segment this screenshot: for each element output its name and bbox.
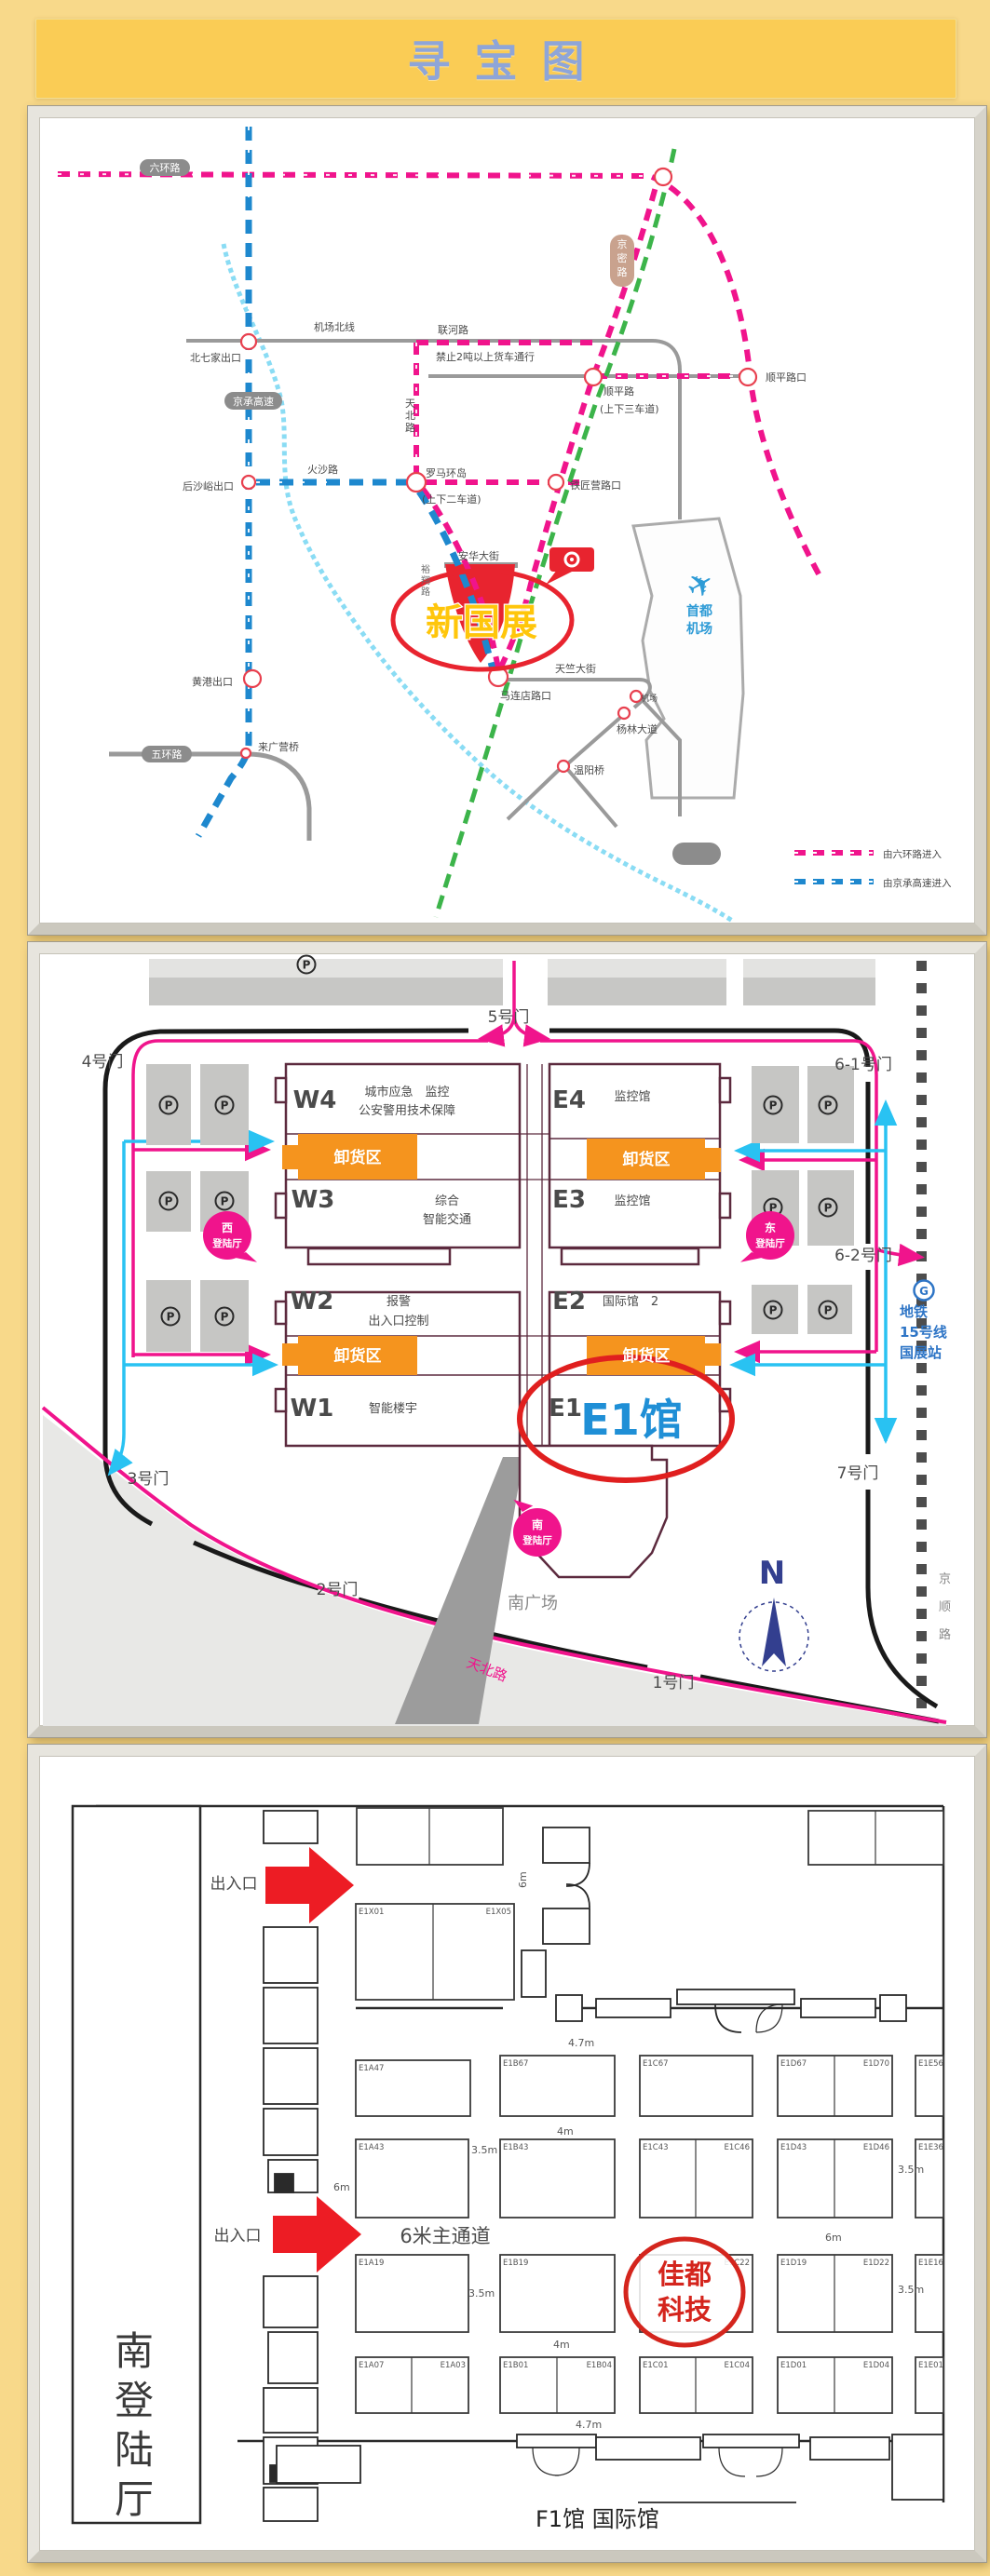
map-label: 3.5m [468, 2287, 495, 2300]
railway-dash [916, 1385, 927, 1396]
map-label: 铁匠营路口 [570, 479, 621, 492]
map-label: 出入口 [214, 2227, 262, 2246]
booth-id: E1D70 [863, 2059, 889, 2069]
booth: E1E56 [915, 2056, 943, 2116]
map-label: 卸货区 [623, 1150, 671, 1169]
map-label: 城市应急 监控 [364, 1085, 449, 1099]
pci-highlight-circle [626, 2239, 743, 2345]
map-label: 6m [825, 2232, 842, 2244]
booth: E1D43E1D46 [778, 2139, 892, 2218]
booth-id: E1C46 [724, 2143, 750, 2152]
registration-hall-bubble: 东登陆厅 [740, 1211, 794, 1262]
map-label: 报警 [387, 1294, 411, 1309]
road-badge-label: 京承高速 [233, 395, 274, 408]
railway-dash [916, 1072, 927, 1083]
map-label: 监控馆 [614, 1090, 650, 1104]
map-label: 顺平路口 [766, 371, 807, 384]
venue-map-panel: G PPPPPPPPPPPPP 西登陆厅东登陆厅南登陆厅 5号门4号门3号门2号… [28, 942, 986, 1737]
expo-badge [546, 547, 594, 585]
road-badge: 京密路 [610, 235, 634, 287]
railway-dash [916, 1184, 927, 1194]
railway-dash [916, 1631, 927, 1641]
map-label: 机场 [686, 621, 712, 637]
booth-id: E1D19 [780, 2259, 807, 2268]
page-title: 寻宝图 [384, 28, 609, 89]
booth-id: E1A47 [359, 2064, 384, 2073]
title-bar: 寻宝图 [35, 19, 956, 99]
map-label: 地铁 [900, 1303, 928, 1320]
map-label: 6m [333, 2181, 350, 2193]
map-label: 出入口 [210, 1875, 258, 1894]
map-label: 4.7m [568, 2037, 594, 2049]
booth-id: E1A43 [359, 2143, 384, 2152]
parking-letter: P [165, 1099, 173, 1113]
railway-dash [916, 961, 927, 971]
map-label: 综合 [435, 1194, 459, 1208]
north-parking-strip [149, 957, 875, 1007]
map-label: 杨林大道 [617, 722, 658, 735]
parking-letter: P [167, 1311, 175, 1324]
map-label: 国展站 [900, 1344, 942, 1361]
map-label: 来广营桥 [258, 740, 299, 753]
map-label: 4m [553, 2339, 570, 2351]
map-label: 新国展 [426, 601, 537, 644]
parking-letter: P [303, 959, 311, 972]
map-label: 6-2号门 [834, 1247, 892, 1265]
booth-id: E1B01 [503, 2361, 528, 2370]
reg-hall-label: 登陆厅 [754, 1237, 785, 1249]
booth: E1D01E1D04 [778, 2357, 892, 2413]
registration-hall-bubble: 西登陆厅 [203, 1211, 257, 1262]
booth: E1C01E1C04 [640, 2357, 753, 2413]
map-label: N [759, 1555, 785, 1592]
map-label: 马连店路口 [500, 689, 551, 702]
railway-dash [916, 1363, 927, 1373]
booth-id: E1C04 [724, 2361, 750, 2370]
booth-id: E1D01 [780, 2361, 807, 2370]
railway-dash [916, 1609, 927, 1619]
booth: E1A43 [356, 2139, 468, 2218]
booth-id: E1D46 [863, 2143, 889, 2152]
map-label: 机场北线 [314, 320, 355, 333]
map-label: 6米主通道 [400, 2225, 490, 2247]
booth-id: E1D22 [863, 2259, 889, 2268]
booth-id: E1B04 [587, 2361, 612, 2370]
railway-dash [916, 1676, 927, 1686]
reg-hall-direction: 南 [532, 1517, 543, 1531]
reg-hall-direction: 东 [765, 1221, 776, 1234]
north-door-vestibule [522, 1827, 590, 1997]
map-label: 5号门 [488, 1008, 530, 1027]
map-label: 卸货区 [334, 1346, 382, 1366]
map-label: (上下二车道) [422, 492, 481, 506]
booth-id: E1C01 [643, 2361, 669, 2370]
booth-id: E1B19 [503, 2259, 528, 2268]
booth: E1E01 [915, 2357, 943, 2413]
railway-dash [916, 1430, 927, 1440]
map-label: 4.7m [576, 2419, 602, 2431]
booth-id: E1C43 [643, 2143, 669, 2152]
map-label: (上下三车道) [600, 402, 659, 415]
booth: E1B43 [500, 2139, 615, 2218]
booth: E1A07E1A03 [356, 2357, 468, 2413]
map-label: 由京承高速进入 [883, 877, 952, 889]
map-label: 6m [517, 1871, 529, 1888]
map-label: 由六环路进入 [883, 848, 942, 860]
railway-dash [916, 1005, 927, 1016]
railway-dash [916, 983, 927, 993]
road-badge: 六环路 [140, 159, 190, 176]
booth-id: E1B67 [503, 2059, 528, 2069]
map-label: 天北路 [405, 398, 415, 434]
floorplan: E1X01E1X05E1A47E1A43E1A19E1A07E1A03E1B67… [39, 1756, 953, 2551]
railway-dash [916, 1162, 927, 1172]
route-chevrons [58, 127, 745, 743]
airport-boundary [633, 519, 743, 798]
map-label: E1馆 [580, 1395, 682, 1445]
map-legend [794, 853, 874, 882]
map-label: W4 [293, 1086, 337, 1114]
booth: E1D19E1D22 [778, 2255, 892, 2332]
map-label: 温阳桥 [574, 764, 604, 776]
booth-id: E1E56 [918, 2059, 943, 2069]
booth: E1B01E1B04 [500, 2357, 615, 2413]
booth-id: E1E36 [918, 2143, 943, 2152]
booth: E1E36 [915, 2139, 943, 2218]
railway-dash [916, 1117, 927, 1127]
parking-letter: P [221, 1099, 229, 1113]
map-label: 卸货区 [334, 1148, 382, 1167]
map-label: 机场 [641, 693, 658, 704]
map-label: 智能交通 [423, 1212, 471, 1227]
map-label: 安华大街 [458, 549, 499, 562]
map-label: 4m [557, 2125, 574, 2138]
parking-letter: P [824, 1202, 833, 1215]
mid-wall-doors [556, 1989, 906, 2032]
reg-hall-direction: 西 [222, 1221, 233, 1234]
booth-id: E1A19 [359, 2259, 384, 2268]
map-label: 火沙路 [307, 464, 338, 476]
map-label: E1 [549, 1395, 582, 1423]
road-badge: 京承高速 [224, 392, 282, 410]
map-label: 裕翔路 [421, 563, 430, 598]
reg-hall-label: 登陆厅 [522, 1534, 552, 1546]
map-label: E3 [552, 1186, 586, 1214]
map-label: 6-1号门 [834, 1056, 892, 1074]
map-label: 黄港出口 [192, 675, 233, 688]
booth: E1B67 [500, 2056, 615, 2116]
map-label: 3号门 [128, 1470, 170, 1489]
parking-letter: P [769, 1304, 778, 1317]
map-label: 科技 [658, 2294, 712, 2326]
railway-dash [916, 1542, 927, 1552]
booth-id: E1A03 [441, 2361, 466, 2370]
map-label: 禁止2吨以上货车通行 [436, 350, 535, 363]
booth-id: E1B43 [503, 2143, 528, 2152]
map-label: 顺平路 [603, 385, 634, 398]
map-label: 京顺路 [939, 1572, 951, 1642]
metro-station-icon: G [915, 1281, 934, 1301]
map-label: 4号门 [82, 1053, 124, 1072]
booth-id: E1D67 [780, 2059, 807, 2069]
parking-letter: P [824, 1099, 833, 1113]
map-label: 7号门 [837, 1464, 879, 1483]
booth: E1A19 [356, 2255, 468, 2332]
railway-dash [916, 1140, 927, 1150]
map-label: 15号线 [900, 1324, 947, 1341]
map-label: 智能楼宇 [369, 1402, 417, 1416]
railway-dash [916, 1519, 927, 1530]
booth [808, 1811, 943, 1865]
parking-letter: P [165, 1195, 173, 1208]
booth: E1C43E1C46 [640, 2139, 753, 2218]
map-label: 国际馆 2 [603, 1295, 658, 1309]
map-label: W1 [291, 1395, 334, 1423]
railway-dash [916, 1452, 927, 1463]
route-map-panel: ✈ 六环路京承高速五环路京密路 机场北线北七家出口联河路禁止2吨以上货车通行天北… [28, 106, 986, 935]
map-label: F1馆 国际馆 [536, 2506, 659, 2532]
booth: E1B19 [500, 2255, 615, 2332]
railway-dash [916, 1229, 927, 1239]
map-label: 天竺大街 [555, 662, 596, 675]
map-label: 2号门 [317, 1581, 359, 1599]
parking-letter: P [221, 1311, 229, 1324]
map-label: 3.5m [898, 2284, 924, 2296]
road-badge-label: 五环路 [152, 749, 183, 761]
entrance-arrow-icon [265, 1847, 354, 1923]
venue-map: G PPPPPPPPPPPPP 西登陆厅东登陆厅南登陆厅 5号门4号门3号门2号… [39, 953, 953, 1726]
map-label: 监控馆 [614, 1194, 650, 1208]
map-label: 南广场 [508, 1594, 558, 1613]
booth-id: E1E01 [918, 2361, 943, 2370]
entrance-arrow-icon [273, 2196, 361, 2273]
map-label: 卸货区 [623, 1346, 671, 1366]
booth-id: E1D04 [863, 2361, 889, 2370]
booth: E1X01E1X05 [356, 1904, 514, 2000]
floorplan-panel: E1X01E1X05E1A47E1A43E1A19E1A07E1A03E1B67… [28, 1745, 986, 2562]
railway-dash [916, 1408, 927, 1418]
booth [357, 1808, 503, 1865]
railway-dash [916, 1475, 927, 1485]
parking-letter: P [824, 1304, 833, 1317]
south-wall-doors [277, 2434, 943, 2502]
railway-dash [916, 1653, 927, 1664]
map-label: 1号门 [653, 1674, 695, 1693]
compass-north-icon [739, 1598, 808, 1671]
map-label: W3 [292, 1186, 335, 1214]
road-badge-label: 六环路 [150, 162, 181, 174]
railway-dash [916, 1207, 927, 1217]
map-label: 后沙峪出口 [183, 479, 234, 492]
railway-dash [916, 1497, 927, 1507]
booth-id: E1D43 [780, 2143, 807, 2152]
parking-letter: P [221, 1195, 229, 1208]
map-label: E2 [552, 1288, 586, 1315]
map-label: 3.5m [471, 2144, 497, 2156]
map-label: 公安警用技术保障 [359, 1103, 455, 1118]
booth-id: E1A07 [359, 2361, 384, 2370]
road-badge: 五环路 [142, 746, 192, 762]
map-label: 佳都 [658, 2259, 712, 2290]
railway-dash [916, 1095, 927, 1105]
booth-id: E1E16 [918, 2259, 943, 2268]
route-map: ✈ 六环路京承高速五环路京密路 机场北线北七家出口联河路禁止2吨以上货车通行天北… [39, 117, 953, 924]
reg-hall-label: 登陆厅 [211, 1237, 242, 1249]
parking-letter: P [769, 1099, 778, 1113]
road-badge-label: 京密路 [617, 237, 628, 278]
booth-id: E1C67 [643, 2059, 669, 2069]
booth-id: E1X01 [359, 1908, 384, 1917]
booth: E1D67E1D70 [778, 2056, 892, 2116]
railway-dash [916, 1050, 927, 1060]
metro-letter: G [919, 1285, 929, 1298]
map-label: 罗马环岛 [426, 466, 467, 479]
map-label: 北七家出口 [190, 351, 241, 364]
railway-dash [916, 1028, 927, 1038]
map-label: 联河路 [438, 324, 468, 336]
map-label: 3.5m [898, 2164, 924, 2176]
railway-dash [916, 1564, 927, 1574]
map-label: 首都 [686, 603, 712, 619]
booth-id: E1X05 [486, 1908, 511, 1917]
bridge-pill [672, 843, 721, 865]
hall-blocks [276, 1064, 730, 1446]
map-label: E4 [552, 1086, 586, 1114]
railway-dash [916, 1586, 927, 1597]
booth: E1C67 [640, 2056, 753, 2116]
booth: E1A47 [356, 2060, 470, 2116]
map-label: W2 [291, 1288, 334, 1315]
map-label: 出入口控制 [368, 1315, 428, 1328]
